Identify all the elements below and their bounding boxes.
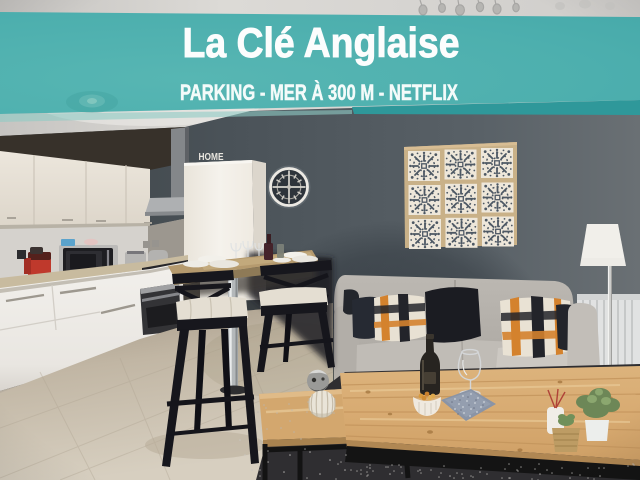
svg-text:La Clé Anglaise: La Clé Anglaise [183,19,460,66]
svg-text:PARKING - MER À 300 M - NETFLI: PARKING - MER À 300 M - NETFLIX [180,80,458,105]
